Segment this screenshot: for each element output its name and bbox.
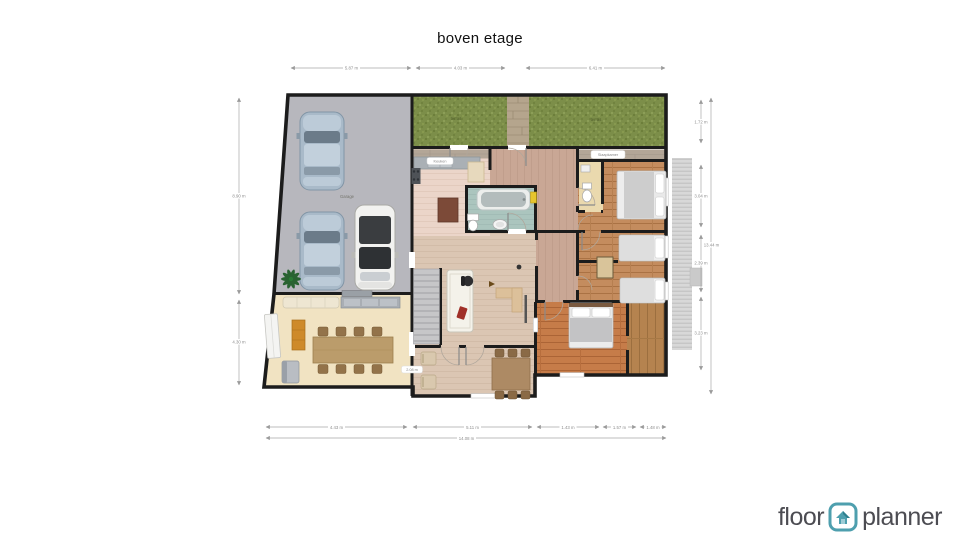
floorplanner-canvas: boven etage [0,0,960,540]
stairs[interactable] [414,269,440,344]
svg-text:Slaapkamer: Slaapkamer [598,153,619,157]
svg-text:14.08 m: 14.08 m [459,436,475,441]
svg-text:4.43 m: 4.43 m [330,425,344,430]
svg-text:6.41 m: 6.41 m [589,66,603,71]
kitchen-chip: Keuken [427,158,453,165]
roof-strip [672,158,702,350]
sitting-table-set [492,349,530,399]
svg-text:3.04 m: 3.04 m [694,194,708,199]
hall-top-floor [490,148,578,188]
svg-text:1.48 m: 1.48 m [646,425,660,430]
svg-text:2.08 m: 2.08 m [406,368,418,372]
garage-label: Garage [340,194,355,199]
dining-bench [283,297,339,308]
stove [412,168,421,184]
bed-single-2 [620,278,665,303]
svg-text:5.11 m: 5.11 m [466,425,479,430]
bedroom-chip: Slaapkamer [591,151,625,159]
floor-dot [517,265,522,270]
wardrobe [597,257,613,278]
garage-door[interactable] [342,291,372,297]
car-white [352,205,399,290]
logo-text-floor: floor [778,503,824,532]
svg-text:1.43 m: 1.43 m [561,425,575,430]
bed-double-top [617,171,666,219]
terrace-right-label: terras [591,117,602,122]
kitchen-table [438,198,458,222]
office-chair [461,276,473,286]
floorplanner-logo: floor planner [778,502,942,532]
sideboard [341,297,400,308]
orange-cabinet [292,320,305,350]
bed-single-1 [619,235,665,261]
bathtub [477,189,530,210]
terrace-left-label: terras [451,116,462,121]
svg-text:1.57 m: 1.57 m [613,425,627,430]
svg-text:3.23 m: 3.23 m [694,331,708,336]
gray-chair [282,361,299,383]
svg-text:4.30 m: 4.30 m [232,340,246,345]
kitchen-cabinet [468,162,484,182]
svg-text:2.39 m: 2.39 m [694,261,708,266]
grass-left [412,95,507,148]
stone-path [507,95,529,148]
svg-text:1.72 m: 1.72 m [694,120,708,125]
floorplan-drawing[interactable]: Garage terras terras Keuken Slaapkamer 2… [0,0,960,540]
wall-dimension-chip: 2.08 m [402,366,423,373]
svg-text:13.44 m: 13.44 m [704,243,720,248]
svg-text:8.90 m: 8.90 m [232,194,246,199]
car-blue-2 [297,212,348,290]
logo-text-planner: planner [862,503,942,532]
svg-text:5.87 m: 5.87 m [345,66,359,71]
car-blue-1 [297,112,348,190]
svg-text:Keuken: Keuken [434,160,447,164]
closet-room-floor [627,302,666,375]
boiler [531,192,537,203]
bathroom-sink [493,220,507,230]
svg-text:4.03 m: 4.03 m [454,66,468,71]
radiator [525,295,528,323]
bed-double-bottom [569,303,613,348]
corridor-floor [536,188,578,302]
toilet [468,214,479,231]
floorplanner-icon [828,502,858,532]
toilet-room-fixtures [581,165,592,202]
